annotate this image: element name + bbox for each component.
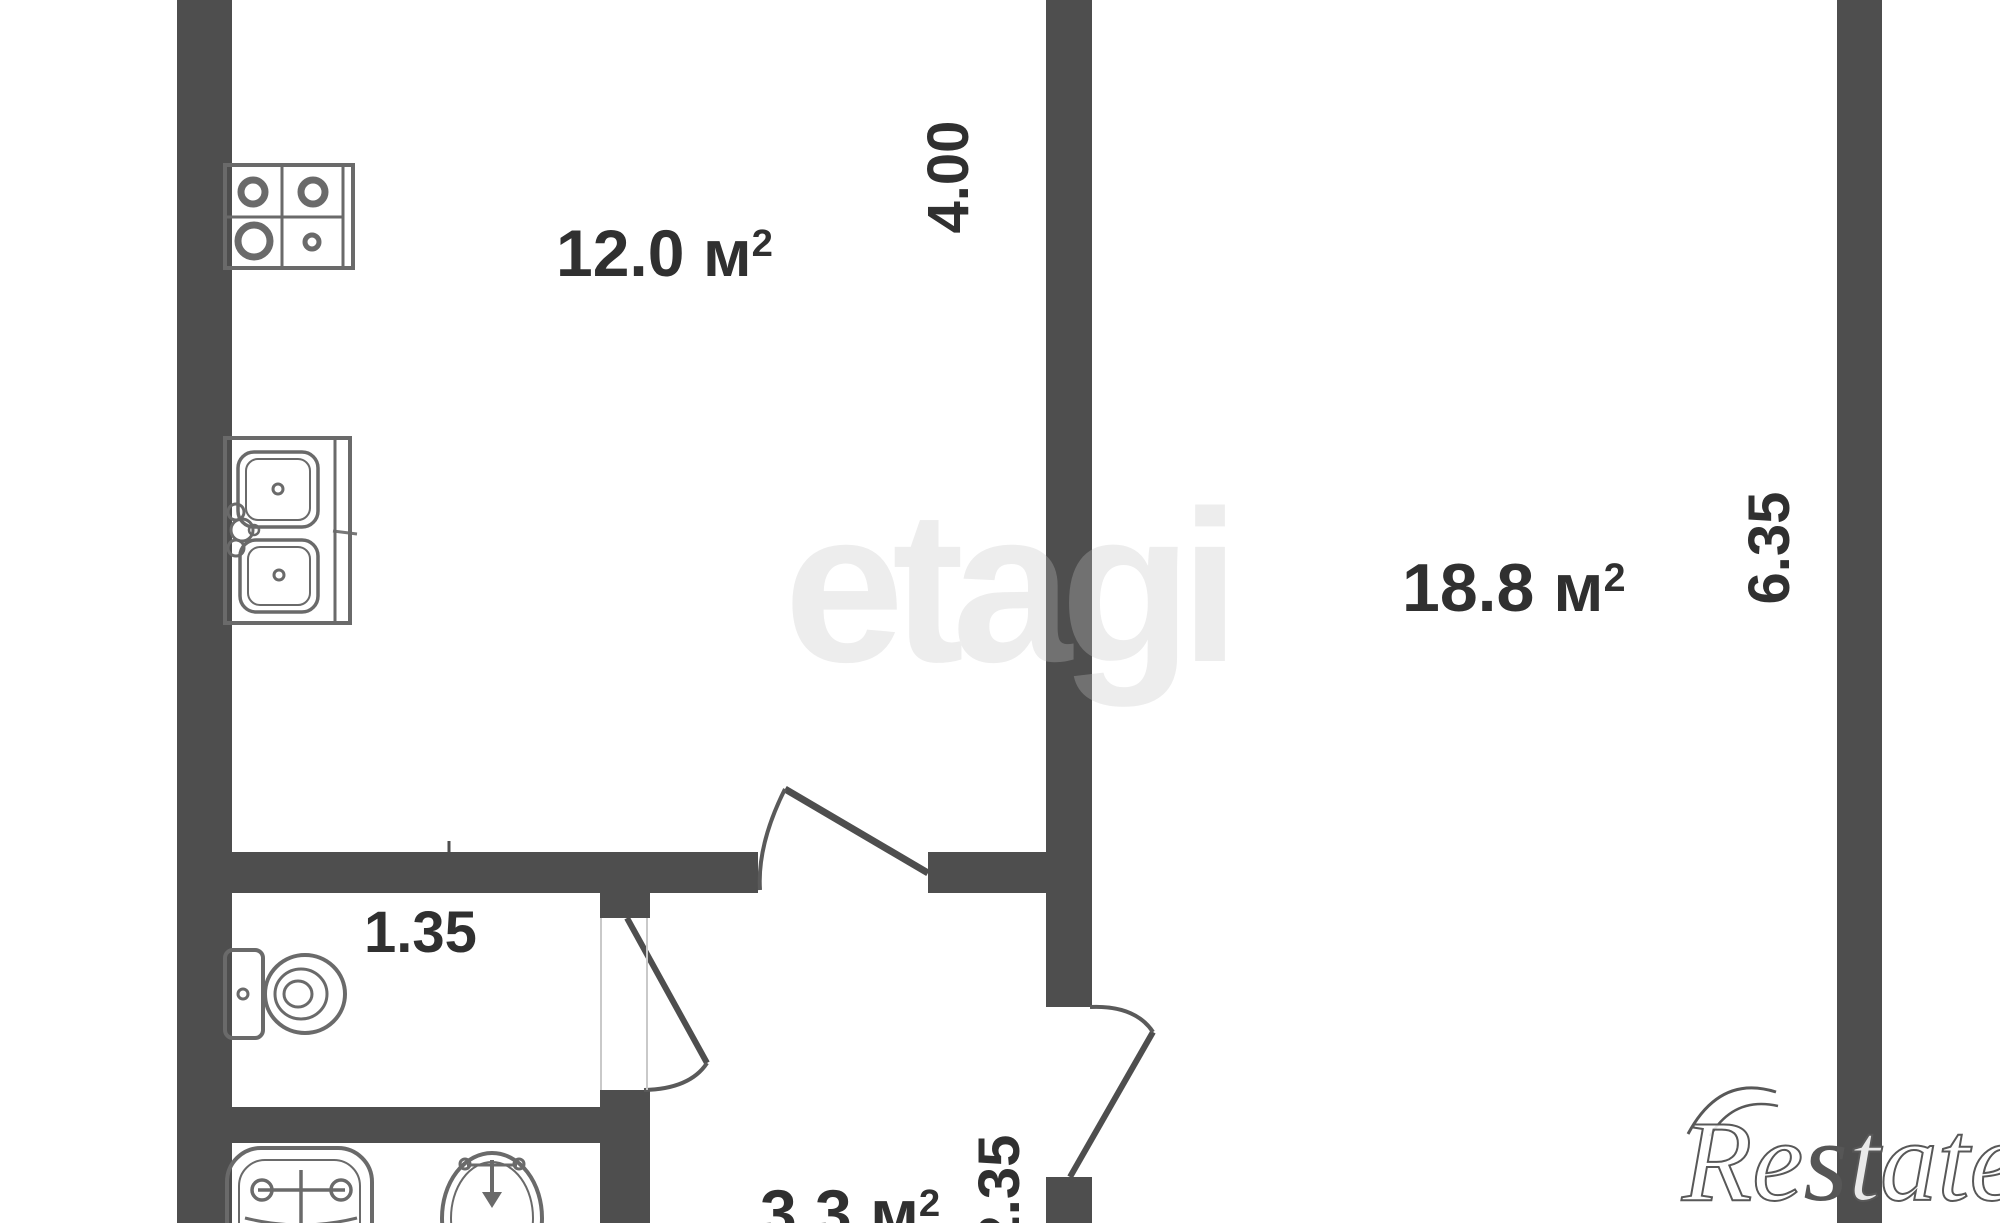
dimension-kitchen-depth: 4.00 xyxy=(920,121,978,234)
wall-kitchen-bottom-right xyxy=(928,852,1046,893)
dimension-living-depth: 6.35 xyxy=(1741,492,1799,605)
toilet-icon xyxy=(225,950,345,1038)
dimension-hall-width: 2.35 xyxy=(971,1135,1029,1223)
dimension-wc-width: 1.35 xyxy=(364,904,477,962)
hallway-area-exp: 2 xyxy=(919,1182,940,1223)
restate-part2: s xyxy=(1803,1098,1848,1223)
washbasin-icon xyxy=(227,1148,372,1223)
wall-bathroom-divider xyxy=(232,1107,600,1143)
room-label-kitchen: 12.0 м2 xyxy=(556,220,773,286)
wall-middle-bottom-stub xyxy=(1046,1177,1092,1223)
room-label-hallway: 3.3 м2 xyxy=(760,1180,940,1223)
restate-watermark: Restate xyxy=(1682,1104,2000,1219)
wall-wc-right-stub xyxy=(600,893,650,918)
room-label-living: 18.8 м2 xyxy=(1402,554,1626,622)
floorplan-canvas: etagi xyxy=(0,0,2000,1223)
living-area-exp: 2 xyxy=(1604,556,1626,600)
wall-kitchen-bottom-left xyxy=(232,852,758,893)
restate-part1: Re xyxy=(1682,1098,1803,1223)
door-bathroom xyxy=(601,918,707,1090)
door-kitchen xyxy=(760,789,928,890)
kitchen-area-exp: 2 xyxy=(752,222,773,265)
oval-sink-icon xyxy=(442,1153,542,1223)
wall-left-exterior xyxy=(177,0,232,1223)
etagi-watermark-overlay: etagi xyxy=(784,478,1228,694)
restate-part3: tate xyxy=(1848,1098,2000,1223)
stove-icon xyxy=(225,165,353,268)
sink-tick xyxy=(333,531,357,534)
hallway-area-unit: м xyxy=(870,1176,919,1223)
kitchen-area-value: 12.0 xyxy=(556,216,684,290)
kitchen-sink-icon xyxy=(225,438,350,623)
dimension-ticks xyxy=(333,531,449,875)
living-area-unit: м xyxy=(1553,550,1603,626)
hallway-area-value: 3.3 xyxy=(760,1176,852,1223)
wall-wc-right-lower xyxy=(600,1090,650,1223)
kitchen-area-unit: м xyxy=(703,216,752,290)
wall-right-exterior xyxy=(1837,0,1882,1223)
living-area-value: 18.8 xyxy=(1402,550,1534,626)
door-living xyxy=(1070,1007,1153,1177)
